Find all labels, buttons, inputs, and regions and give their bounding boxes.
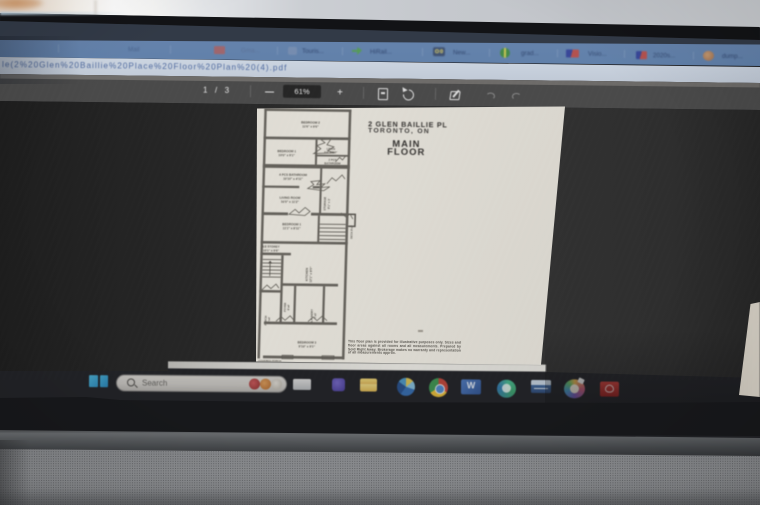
svg-text:12'1" x 9'0": 12'1" x 9'0" [309,266,313,283]
svg-text:11'1" x 8'11": 11'1" x 8'11" [283,226,301,230]
svg-text:10'10" x 4'11": 10'10" x 4'11" [283,177,303,181]
svg-text:6'x4': 6'x4' [286,304,290,310]
svg-text:8'1" x 3': 8'1" x 3' [327,198,331,209]
svg-text:11'6" x 9'6": 11'6" x 9'6" [302,124,319,128]
svg-text:9'10" x 9'1": 9'10" x 9'1" [299,344,316,348]
svg-text:10'1" x 9'6": 10'1" x 9'6" [263,248,280,252]
svg-text:10'0" x 9'1": 10'0" x 9'1" [278,153,295,157]
svg-text:16'0" x 11'2": 16'0" x 11'2" [281,200,300,204]
svg-text:3'4" x 3'0": 3'4" x 3'0" [324,150,338,154]
svg-text:DECK 8'x3': DECK 8'x3' [349,225,353,239]
